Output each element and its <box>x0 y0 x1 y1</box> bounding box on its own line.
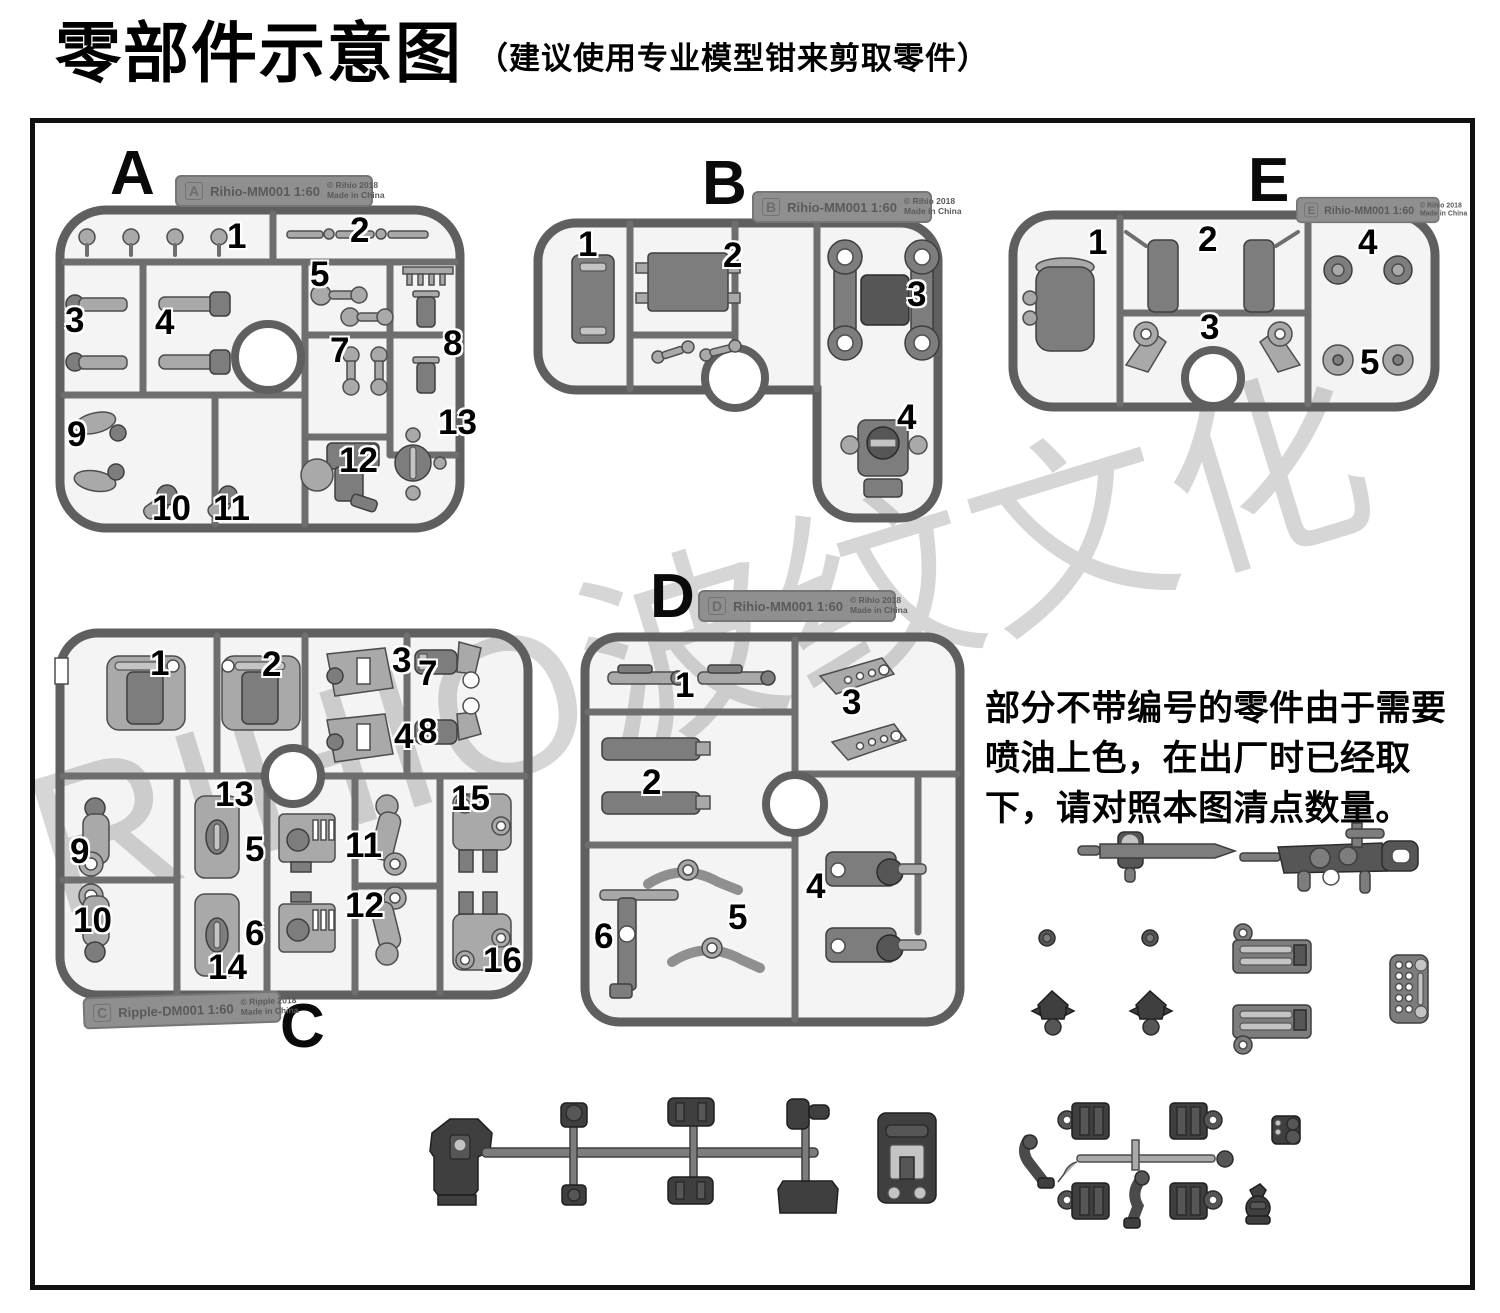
d-part-number: 6 <box>594 919 613 954</box>
sprue-e-letter: E <box>1248 150 1289 212</box>
unnumbered-parts-note: 部分不带编号的零件由于需要喷油上色，在出厂时已经取下，请对照本图清点数量。 <box>985 684 1477 834</box>
page-title: 零部件示意图 <box>55 20 463 86</box>
d-part-number: 4 <box>806 869 825 904</box>
sprue-b-letter: B <box>702 153 747 215</box>
sprue-e-tab-code: Rihio-MM001 1:60 <box>1324 204 1414 216</box>
sprue-d-tab-copyright: © Rihio 2018 Made in China <box>850 596 908 616</box>
b-part-1-shapes <box>572 255 614 343</box>
valve-head-part <box>1246 1184 1270 1224</box>
c-part-number: 2 <box>262 647 281 682</box>
b-part-number: 4 <box>897 400 916 435</box>
sword-part <box>1078 832 1235 882</box>
c-part-number: 3 <box>392 643 411 678</box>
sprue-d-tab-code: Rihio-MM001 1:60 <box>733 599 843 614</box>
sprue-c-tab-letter: C <box>93 1003 112 1022</box>
loose-weapon-parts <box>1030 815 1450 1065</box>
sprue-e-tab-letter: E <box>1304 202 1318 217</box>
bracket-part <box>1272 1116 1300 1144</box>
sprue-c-tab-copyright: © Ripple 2018 Made in China <box>240 996 298 1018</box>
c-part-number: 4 <box>394 719 413 754</box>
a-part-number: 10 <box>152 491 191 526</box>
sprue-e-tab-copyright: © Rihio 2018 Made in China <box>1420 202 1467 218</box>
rifle-part <box>1240 823 1418 893</box>
sprue-c: C C Ripple-DM001 1:60 © Ripple 2018 Made… <box>55 628 533 1000</box>
perforated-plate-part <box>1390 955 1428 1023</box>
c-part-number: 9 <box>70 834 89 869</box>
chest-part <box>878 1113 936 1203</box>
pod-parts <box>1233 924 1311 1054</box>
sprue-b-tab-code: Rihio-MM001 1:60 <box>787 200 897 215</box>
c-part-number: 7 <box>418 656 437 691</box>
page-subtitle: （建议使用专业模型钳来剪取零件） <box>477 33 989 86</box>
a-part-number: 13 <box>438 405 477 440</box>
d-part-number: 3 <box>842 685 861 720</box>
c-part-1-shapes <box>107 656 185 730</box>
sprue-a-tab: A Rihio-MM001 1:60 © Rihio 2018 Made in … <box>175 175 373 207</box>
d-part-number: 2 <box>642 765 661 800</box>
a-part-number: 7 <box>330 333 349 368</box>
b-part-number: 3 <box>907 277 926 312</box>
c-part-number: 11 <box>345 828 382 863</box>
c-part-number: 16 <box>483 943 522 978</box>
sprue-a-tab-code: Rihio-MM001 1:60 <box>210 184 320 199</box>
sprue-a-letter: A <box>110 143 155 205</box>
sprue-a-tab-copyright: © Rihio 2018 Made in China <box>327 181 385 201</box>
sprue-d-graphic <box>580 632 965 1027</box>
sprue-e-tab: E Rihio-MM001 1:60 © Rihio 2018 Made in … <box>1296 197 1440 223</box>
claw-foot-parts <box>1032 991 1172 1035</box>
c-part-number: 15 <box>451 781 490 816</box>
sprue-d: D D Rihio-MM001 1:60 © Rihio 2018 Made i… <box>580 632 965 1027</box>
a-part-number: 4 <box>155 305 174 340</box>
sprue-e: E E Rihio-MM001 1:60 © Rihio 2018 Made i… <box>1008 210 1440 415</box>
b-part-number: 1 <box>578 227 597 262</box>
c-part-number: 13 <box>215 777 254 812</box>
sprue-d-tab: D Rihio-MM001 1:60 © Rihio 2018 Made in … <box>698 590 896 622</box>
small-parts-runner <box>482 1098 838 1213</box>
sprue-b: B B Rihio-MM001 1:60 © Rihio 2018 Made i… <box>530 215 950 545</box>
sprue-c-tab-code: Ripple-DM001 1:60 <box>118 1001 234 1020</box>
sprue-d-letter: D <box>650 566 695 628</box>
c-part-number: 8 <box>418 714 437 749</box>
d-part-number: 5 <box>728 900 747 935</box>
a-part-number: 3 <box>65 303 84 338</box>
sprue-b-tab-letter: B <box>762 198 780 217</box>
a-part-number: 2 <box>350 213 369 248</box>
c-part-number: 1 <box>150 646 169 681</box>
cap-parts <box>1039 930 1158 946</box>
parts-diagram-page: { "page": { "title": "零部件示意图", "subtitle… <box>0 0 1500 1313</box>
a-part-number: 12 <box>339 443 378 478</box>
c-part-number: 10 <box>73 903 112 938</box>
sprue-b-tab: B Rihio-MM001 1:60 © Rihio 2018 Made in … <box>752 191 932 223</box>
c-part-number: 12 <box>345 888 384 923</box>
a-part-number: 11 <box>213 491 250 526</box>
e-part-number: 2 <box>1198 222 1217 257</box>
sprue-b-tab-copyright: © Rihio 2018 Made in China <box>904 197 962 217</box>
torso-part <box>430 1119 492 1205</box>
c-part-number: 6 <box>245 916 264 951</box>
sprue-a: A A Rihio-MM001 1:60 © Rihio 2018 Made i… <box>55 205 465 535</box>
a-part-number: 1 <box>227 219 246 254</box>
e-part-number: 1 <box>1088 225 1107 260</box>
page-header: 零部件示意图 （建议使用专业模型钳来剪取零件） <box>55 20 989 86</box>
e-part-number: 4 <box>1358 225 1377 260</box>
c-part-number: 14 <box>208 950 247 985</box>
sprue-a-graphic <box>55 205 465 535</box>
a-part-number: 5 <box>310 257 329 292</box>
c-part-4-shapes <box>327 714 393 762</box>
e-part-number: 5 <box>1360 345 1379 380</box>
b-part-number: 2 <box>723 238 742 273</box>
loose-torso-runner-parts <box>420 1085 960 1250</box>
a-part-number: 8 <box>443 326 462 361</box>
sprue-a-tab-letter: A <box>185 182 203 201</box>
c-part-2-shapes <box>222 656 300 730</box>
d-part-number: 1 <box>675 668 694 703</box>
c-part-number: 5 <box>245 832 264 867</box>
e-part-number: 3 <box>1200 310 1219 345</box>
a-part-number: 9 <box>67 417 86 452</box>
loose-pouch-arm-parts <box>1010 1090 1310 1250</box>
sprue-d-tab-letter: D <box>708 597 726 616</box>
